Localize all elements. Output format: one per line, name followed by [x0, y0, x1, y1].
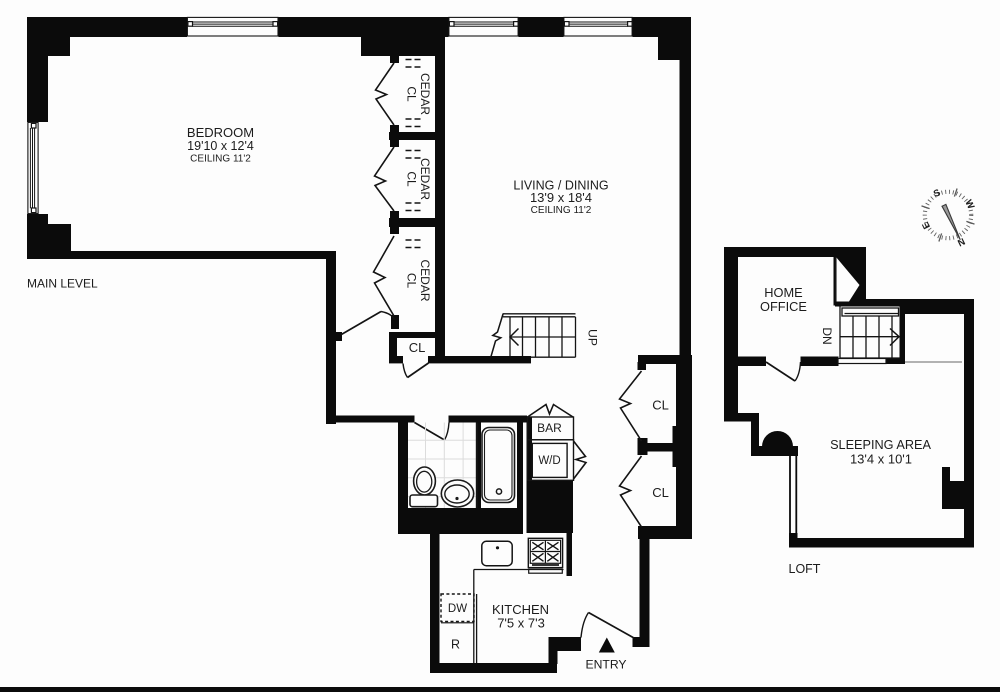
svg-text:ENTRY: ENTRY	[585, 658, 626, 672]
svg-text:7'5 x 7'3: 7'5 x 7'3	[497, 616, 545, 631]
svg-text:CL: CL	[409, 340, 426, 355]
svg-text:BEDROOM: BEDROOM	[187, 125, 254, 140]
svg-text:R: R	[451, 638, 460, 652]
svg-text:UP: UP	[586, 329, 600, 346]
svg-text:13'4 x 10'1: 13'4 x 10'1	[850, 452, 912, 467]
svg-text:BAR: BAR	[537, 421, 562, 435]
svg-text:DW: DW	[448, 603, 467, 615]
svg-text:13'9 x 18'4: 13'9 x 18'4	[530, 190, 592, 205]
svg-text:CEILING 11'2: CEILING 11'2	[190, 153, 251, 164]
svg-text:LOFT: LOFT	[789, 562, 821, 576]
svg-text:CL: CL	[652, 398, 669, 413]
svg-text:19'10 x 12'4: 19'10 x 12'4	[187, 139, 254, 153]
svg-text:HOME: HOME	[764, 285, 802, 300]
svg-text:W/D: W/D	[538, 455, 560, 467]
svg-text:OFFICE: OFFICE	[760, 299, 807, 314]
svg-text:CEILING 11'2: CEILING 11'2	[531, 205, 592, 216]
svg-text:SLEEPING AREA: SLEEPING AREA	[830, 438, 931, 452]
svg-text:DN: DN	[820, 327, 834, 344]
svg-text:MAIN LEVEL: MAIN LEVEL	[27, 277, 98, 291]
svg-text:CL: CL	[652, 485, 669, 500]
